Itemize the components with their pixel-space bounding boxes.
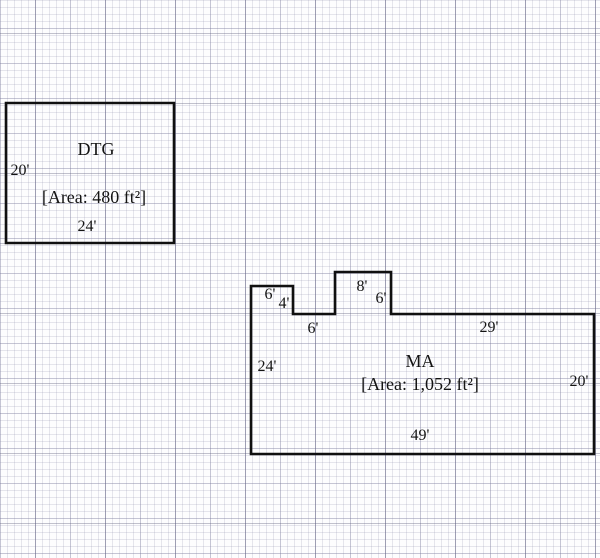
ma-area-label: [Area: 1,052 ft²] [361,375,479,393]
dtg-dim-bottom: 24' [78,219,97,235]
ma-dim-bump-top: 8' [357,279,368,295]
dtg-area-label: [Area: 480 ft²] [42,188,146,206]
ma-dim-bump-side: 6' [376,291,387,307]
dtg-dim-left: 20' [11,163,30,179]
ma-dim-ledge-side: 4' [279,296,290,312]
ma-dim-bottom: 49' [411,428,430,444]
floor-plan-drawing [0,0,600,558]
ma-dim-left: 24' [258,359,277,375]
dtg-name-label: DTG [78,140,115,158]
ma-dim-right: 20' [570,374,589,390]
graph-paper-canvas: DTG [Area: 480 ft²] 20' 24' MA [Area: 1,… [0,0,600,558]
ma-dim-ledge-bottom: 6' [308,321,319,337]
ma-name-label: MA [405,352,434,370]
ma-dim-top-right: 29' [480,320,499,336]
ma-dim-ledge-top: 6' [265,287,276,303]
